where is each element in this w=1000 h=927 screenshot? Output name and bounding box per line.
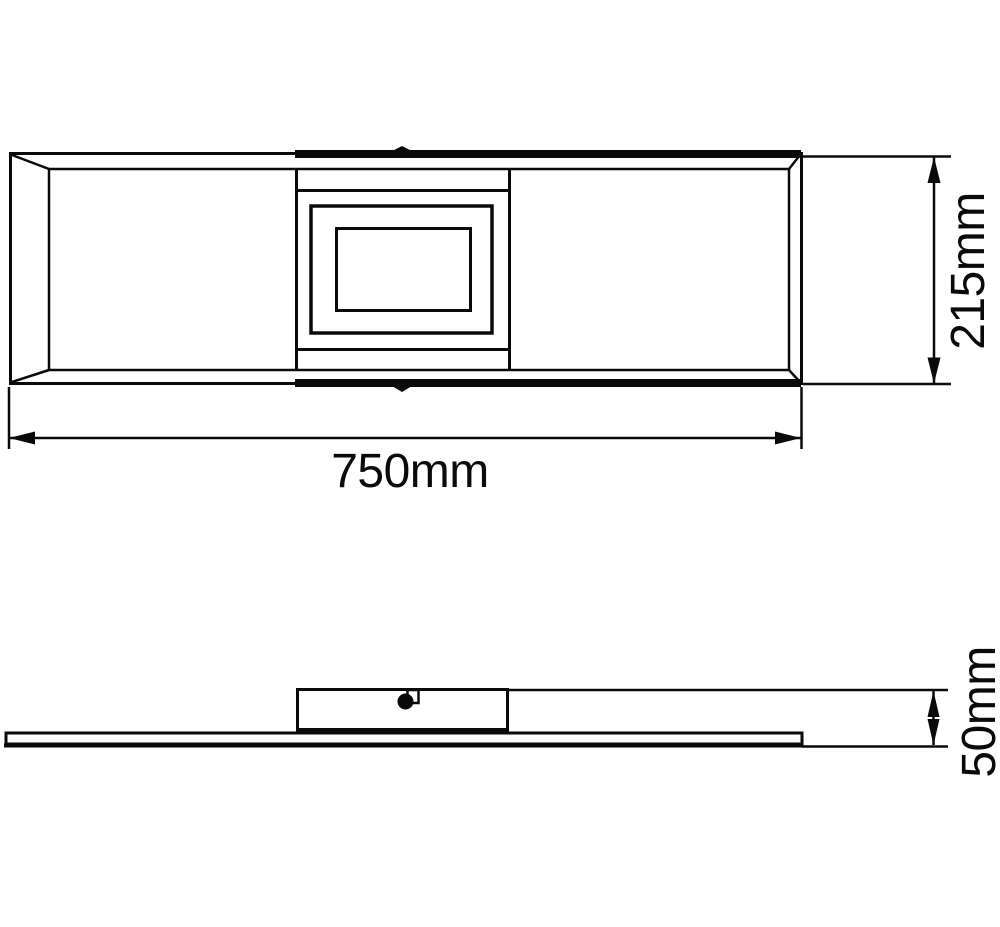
mounting-tab-top [392, 146, 412, 151]
panel-profile-slab [6, 733, 802, 744]
bevel-line-top-left [12, 155, 49, 169]
bevel-line-bottom-left [12, 370, 49, 382]
canopy-inner-box [337, 229, 471, 311]
mounting-screw-icon [398, 690, 419, 710]
arrowhead-up [928, 157, 941, 183]
arrowhead-depth-up [928, 691, 940, 717]
canopy-outer-box [311, 206, 492, 333]
top-view [11, 146, 802, 392]
height-dimension: 215mm [803, 157, 995, 385]
panel-inner-frame [49, 169, 789, 370]
depth-dimension: 50mm [507, 646, 1000, 777]
mounting-tab-bottom [392, 386, 412, 392]
side-view [4, 690, 802, 746]
arrowhead-depth-down [928, 719, 940, 745]
height-dimension-label: 215mm [942, 192, 995, 350]
arrowhead-left [9, 432, 35, 445]
arrowhead-right [775, 432, 801, 445]
depth-dimension-label: 50mm [953, 646, 1000, 777]
arrowhead-down [928, 358, 941, 384]
technical-drawing: 750mm 215mm 50mm [0, 0, 1000, 927]
width-dimension-label: 750mm [331, 445, 489, 498]
screw-head [398, 694, 414, 710]
width-dimension: 750mm [9, 387, 802, 498]
